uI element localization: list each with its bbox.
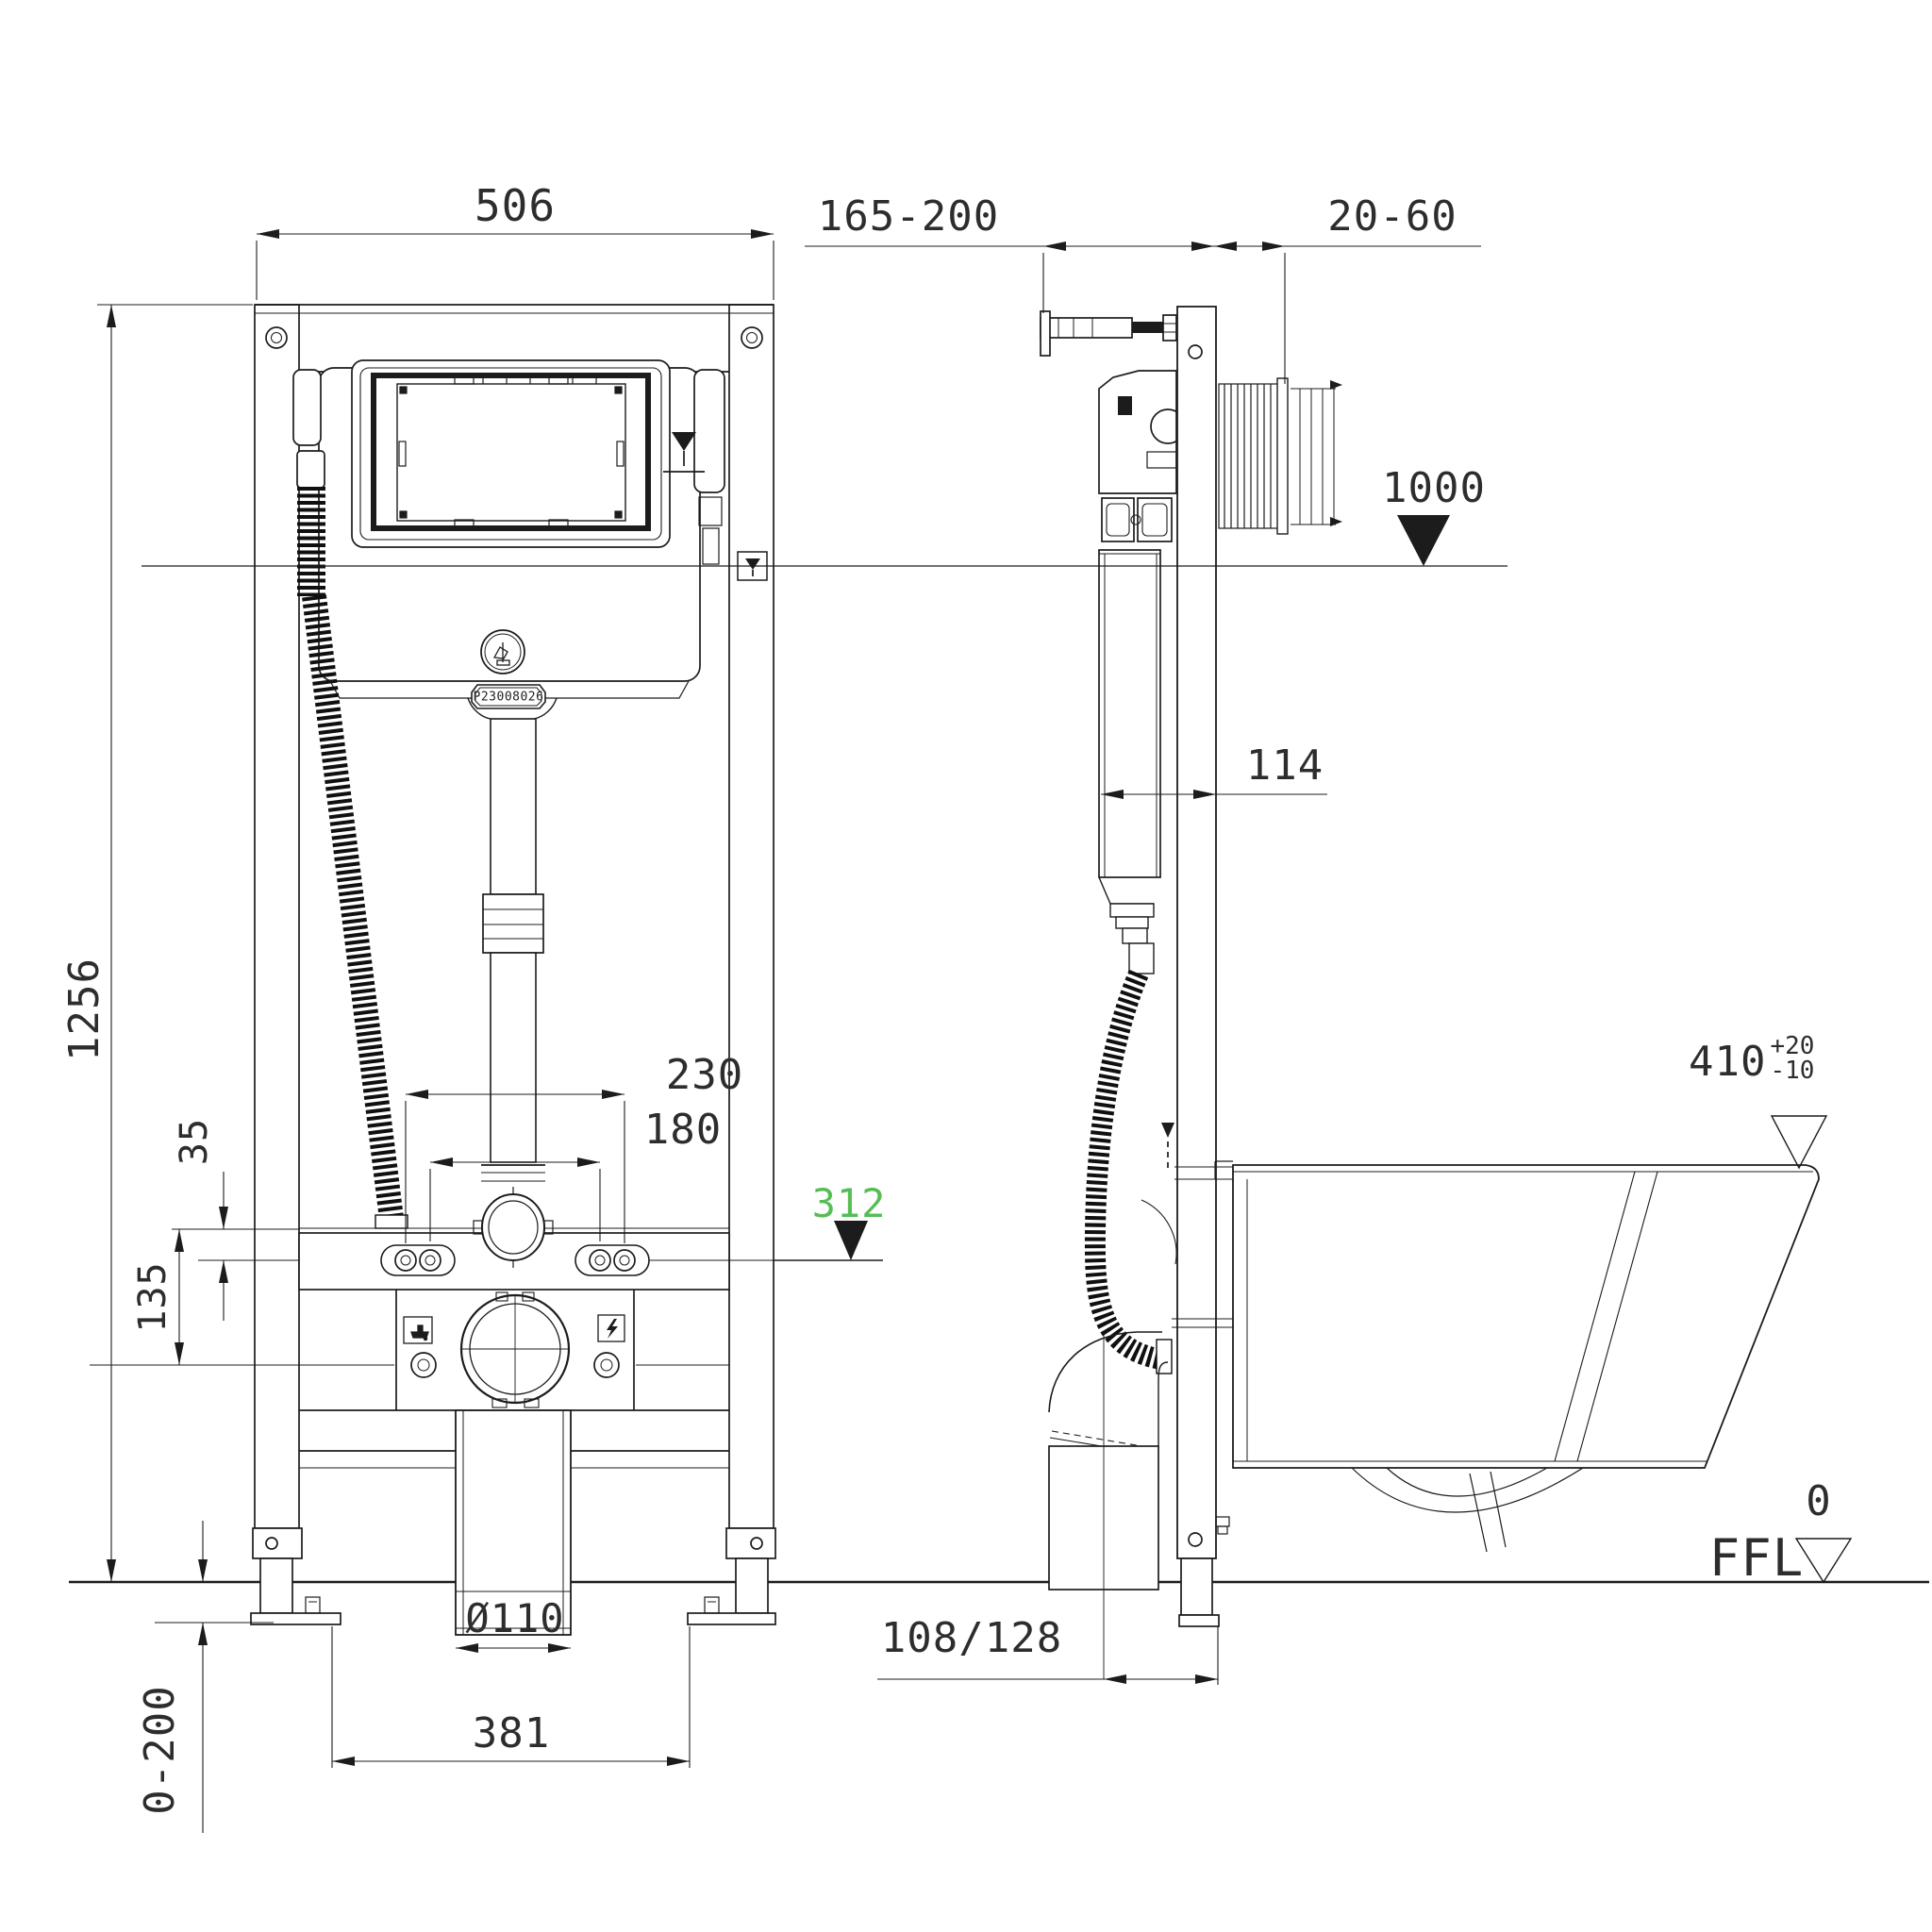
ffl-label: FFL — [1709, 1533, 1805, 1584]
dim-410-tol-plus: +20 — [1770, 1034, 1814, 1058]
dim-410-tol-minus: -10 — [1770, 1058, 1814, 1083]
dim-drain-diameter-label: Ø110 — [465, 1599, 564, 1639]
dim-bowl-height-label: 410 +20 -10 — [1689, 1041, 1814, 1083]
side-flush-hose — [1095, 974, 1172, 1374]
dim-1256-lines — [97, 305, 253, 1582]
flush-plate-window — [352, 360, 670, 547]
level-312-marker — [774, 1221, 883, 1260]
flush-pipe — [468, 698, 557, 1181]
electrical-icon — [598, 1315, 625, 1341]
ffl-zero-label: 0 — [1806, 1481, 1832, 1523]
dim-135-label: 135 — [134, 1261, 172, 1332]
dim-180-label: 180 — [644, 1109, 722, 1151]
flow-direction-icon — [1141, 1123, 1176, 1264]
dim-outlet-depth-label: 108/128 — [881, 1618, 1062, 1659]
drain-panel — [299, 1290, 729, 1410]
inlet-valve — [293, 370, 325, 488]
water-supply-icon — [404, 1317, 432, 1343]
wall-bracket — [1041, 311, 1176, 356]
level-1000-label: 1000 — [1382, 468, 1486, 509]
dim-230-label: 230 — [666, 1055, 743, 1096]
dim-frame-height-label: 1256 — [64, 958, 106, 1061]
drain-elbow — [1049, 1332, 1168, 1590]
dim-frame-depth-label: 114 — [1246, 745, 1324, 787]
technical-drawing: 506 165-200 20-60 1000 1256 114 230 180 … — [0, 0, 1932, 1932]
dim-lining-label: 20-60 — [1327, 196, 1457, 238]
frame-screw-icon — [266, 327, 762, 348]
dim-110-lines — [456, 1643, 571, 1653]
side-valve-fittings — [1102, 498, 1172, 541]
serial-plate-label: P23008026 — [474, 691, 544, 704]
dim-wall-depth-label: 165-200 — [818, 196, 999, 238]
level-410-marker — [1772, 1116, 1826, 1168]
dim-wall-lines — [805, 241, 1481, 384]
dim-frame-width-label: 506 — [475, 184, 556, 227]
wall-sleeve-bellows — [1219, 378, 1342, 534]
ffl-marker — [1796, 1539, 1851, 1582]
front-view — [251, 305, 775, 1635]
bowl-trap — [1352, 1468, 1583, 1552]
dim-135-lines — [175, 1229, 184, 1365]
level-312-label: 312 — [812, 1184, 887, 1224]
side-cistern-tank — [1099, 550, 1160, 974]
side-flush-unit — [1099, 371, 1185, 493]
dim-35-label: 35 — [175, 1118, 213, 1165]
toilet-bowl — [1172, 1161, 1819, 1468]
dim-410-value: 410 — [1689, 1041, 1766, 1083]
dim-foot-span-label: 381 — [473, 1713, 550, 1755]
dim-506-lines — [257, 229, 774, 300]
dim-foot-range-label: 0-200 — [140, 1685, 181, 1814]
